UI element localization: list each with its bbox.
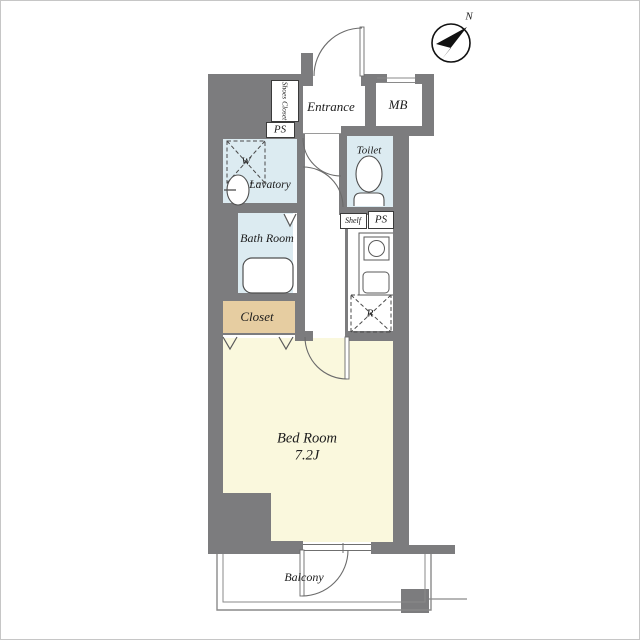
wall-entrance-bottom xyxy=(341,126,434,136)
wall-bath-top xyxy=(223,203,305,213)
shoes-closet-label: Shoes Closet xyxy=(281,82,290,121)
meter-box-label: MB xyxy=(389,97,408,113)
corridor xyxy=(305,136,339,331)
wall-lavatory-corridor xyxy=(297,133,305,209)
balcony-door-frame xyxy=(303,543,371,553)
refrigerator-label: R xyxy=(367,307,374,320)
wall-toilet-left xyxy=(339,134,347,211)
bed-room-label: Bed Room 7.2J xyxy=(277,431,337,466)
balcony-label: Balcony xyxy=(284,570,323,584)
wall-bedroom-bottom-left xyxy=(271,541,303,554)
closet-label: Closet xyxy=(240,309,273,325)
pipe-space-bottom-label: PS xyxy=(375,213,387,226)
room-balcony xyxy=(219,554,431,609)
pipe-space-top-label: PS xyxy=(274,123,286,136)
wall-bedroom-bottom-right xyxy=(371,542,409,554)
balcony-pillar xyxy=(401,589,429,613)
wall-right xyxy=(393,134,409,554)
bath-room-label: Bath Room xyxy=(240,231,294,245)
wall-bedroom-top-right xyxy=(345,331,393,341)
floor-plan: Shoes Closet Entrance MB PS Toilet W Lav… xyxy=(0,0,640,640)
wall-bottom-extension xyxy=(409,545,455,554)
wall-kitchen-corridor xyxy=(345,229,348,333)
bed-room-name: Bed Room xyxy=(277,431,337,448)
bed-room-size: 7.2J xyxy=(277,448,337,465)
toilet-label: Toilet xyxy=(357,144,382,157)
entrance-door xyxy=(314,27,364,76)
wall-entrance-stub xyxy=(301,53,313,86)
lavatory-label: Lavatory xyxy=(249,179,291,193)
wall-closet-top xyxy=(213,293,305,301)
wall-bath-right xyxy=(297,203,305,301)
wall-bedroom-top-left xyxy=(295,331,313,341)
shelf-label: Shelf xyxy=(345,216,361,226)
wall-bottom-left-block xyxy=(208,493,271,554)
room-lavatory xyxy=(223,139,297,205)
washing-machine-label: W xyxy=(241,155,250,168)
room-bedroom-lower xyxy=(271,493,393,542)
compass-icon xyxy=(432,24,470,62)
room-bedroom-upper xyxy=(223,338,393,493)
wall-left xyxy=(208,74,223,554)
wall-left-bath xyxy=(223,205,238,301)
entrance-label: Entrance xyxy=(307,99,355,115)
compass-north-label: N xyxy=(465,10,472,23)
wall-closet-bottom-line xyxy=(217,333,297,335)
room-bath xyxy=(238,213,293,293)
